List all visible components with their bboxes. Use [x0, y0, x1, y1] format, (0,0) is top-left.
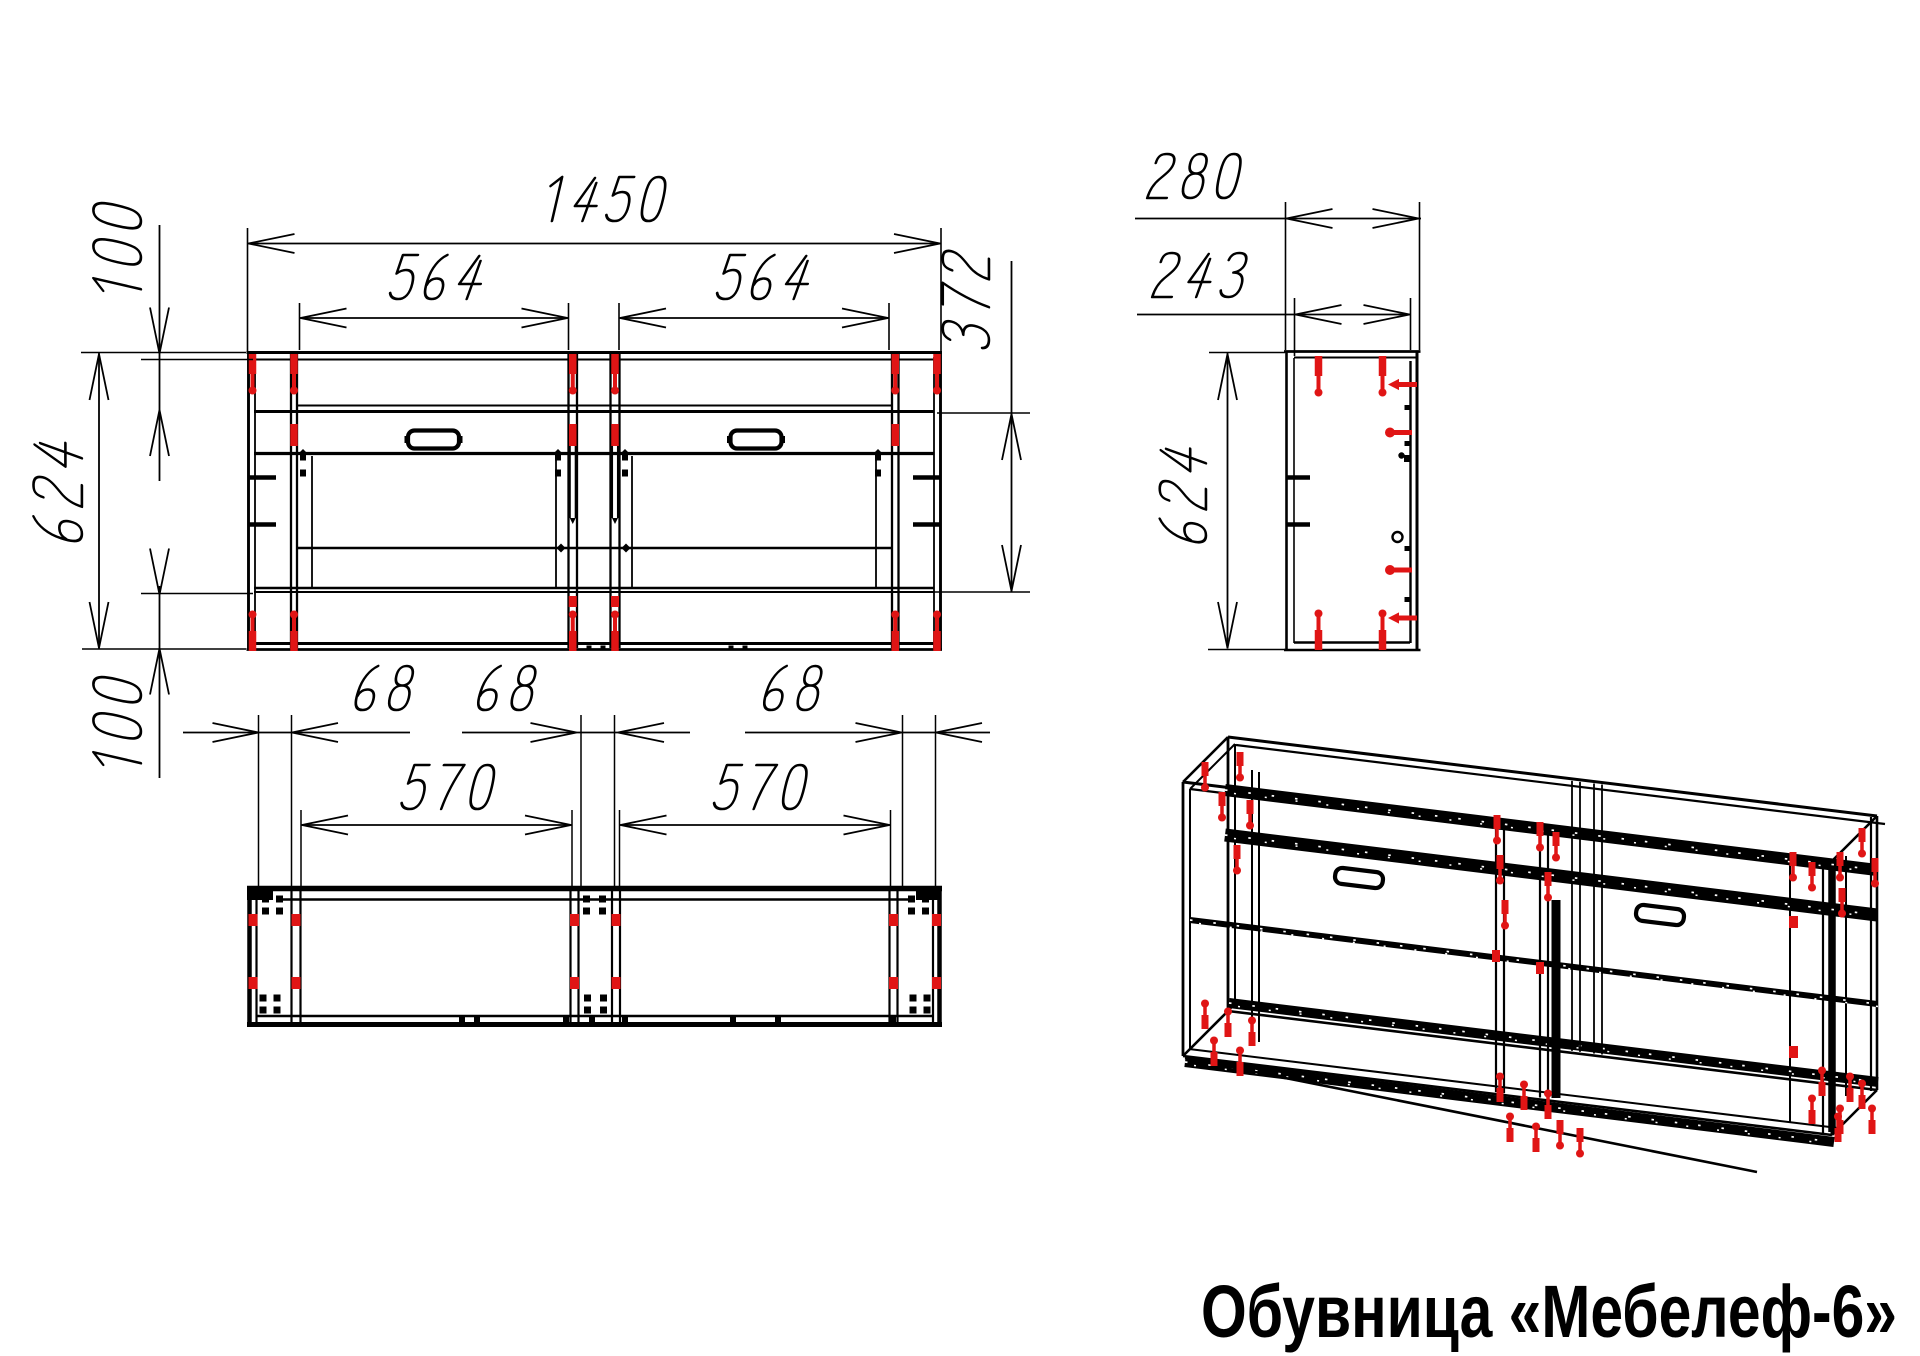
svg-text:Обувница «Мебелеф-6»: Обувница «Мебелеф-6» [1201, 1270, 1897, 1353]
